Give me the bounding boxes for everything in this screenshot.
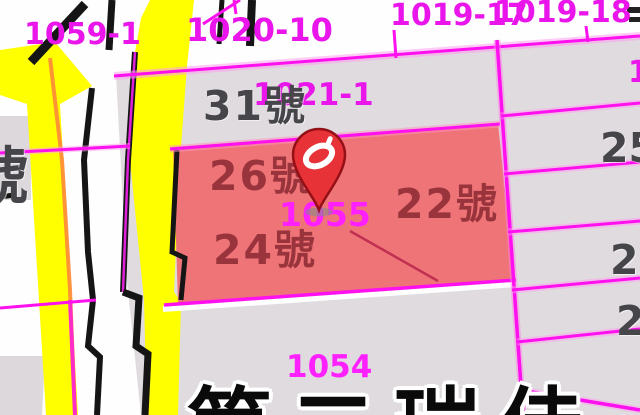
house-number-partial: 2 xyxy=(610,240,639,281)
house-number-partial: 2 xyxy=(616,301,640,342)
boundary-line xyxy=(394,30,396,58)
map-viewport[interactable]: 1059-1 1020-10 1019-17 1019-18 1 1021-1 … xyxy=(0,0,640,415)
house-number-24: 24號 xyxy=(213,230,317,271)
house-number-22: 22號 xyxy=(395,184,499,225)
house-number-31: 31號 xyxy=(203,86,307,127)
house-number-hao-partial: 號 xyxy=(0,146,28,208)
map-building-label: 第二瑞佳 xyxy=(186,358,602,415)
location-pin[interactable] xyxy=(283,126,353,218)
parcel-label-right-partial: 1 xyxy=(628,58,640,88)
parcel-label-1054: 1054 xyxy=(286,352,372,383)
pin-body xyxy=(293,129,345,210)
parcel-label-1019-18: 1019-18 xyxy=(494,0,632,28)
bottom-left-parcel xyxy=(0,356,45,415)
parcel-label-1020-10: 1020-10 xyxy=(186,14,333,46)
parcel-label-1059-1: 1059-1 xyxy=(24,20,141,50)
house-number-25-partial: 25 xyxy=(600,128,640,169)
